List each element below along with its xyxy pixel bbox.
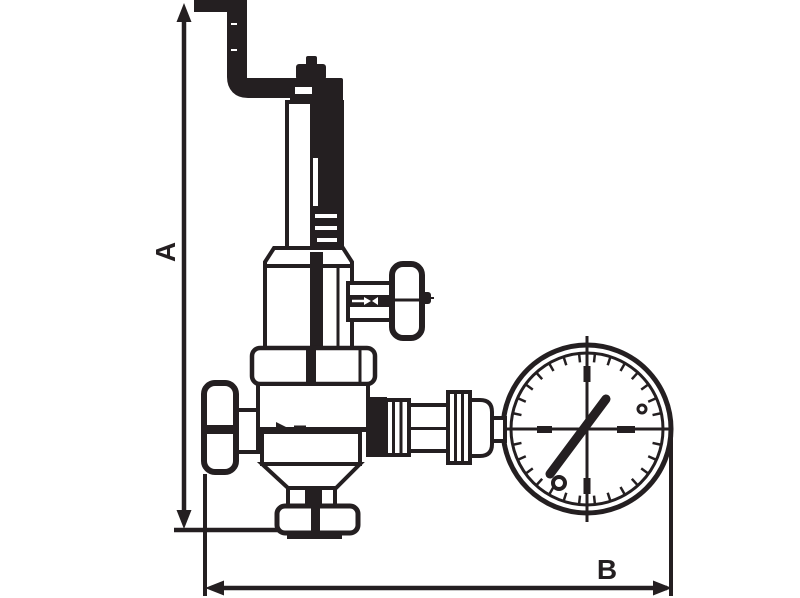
- knob-midband: [204, 425, 236, 434]
- dimension-a-arrow-down-icon: [177, 510, 192, 529]
- spring-housing: [265, 248, 352, 352]
- union-nut-2: [448, 392, 470, 463]
- union-end-cap: [470, 400, 492, 456]
- outlet-flange-divider: [311, 506, 320, 533]
- gauge-stem: [492, 418, 505, 441]
- valve-technical-drawing: A B: [0, 0, 800, 598]
- outlet-neck-band: [305, 488, 322, 506]
- discharge-pipe: [194, 0, 298, 88]
- discharge-pipe-bend: [237, 0, 298, 88]
- spring-housing-shade-band: [310, 252, 323, 352]
- gauge-tick: [653, 413, 661, 415]
- shutoff-knob: [204, 383, 258, 472]
- dimension-b-label: B: [597, 554, 617, 585]
- body-flange-divider: [306, 348, 316, 384]
- pressure-gauge: [503, 336, 671, 522]
- outlet-unions: [366, 392, 505, 463]
- stem-highlight: [313, 158, 318, 206]
- gauge-scale-mark: [537, 426, 552, 433]
- valve-body: [252, 348, 375, 539]
- gauge-tick: [653, 443, 661, 445]
- gauge-tick: [514, 413, 522, 415]
- side-tap: [348, 264, 434, 338]
- body-taper: [262, 464, 360, 488]
- gauge-tick: [514, 443, 522, 445]
- stem-collar-slot: [295, 87, 312, 94]
- stem-thread-line: [317, 238, 337, 242]
- gauge-tick: [594, 496, 595, 504]
- gauge-needle-hub: [553, 477, 565, 489]
- gauge-scale-mark: [584, 366, 591, 382]
- t-handle-nub: [422, 292, 431, 304]
- outlet-bottom-face: [287, 533, 342, 539]
- gauge-tick: [579, 496, 580, 504]
- gauge-scale-mark: [617, 426, 635, 433]
- union-nut-1: [386, 400, 409, 455]
- gauge-tick: [579, 354, 580, 362]
- gauge-dial-screw: [638, 405, 646, 413]
- body-upper: [258, 384, 368, 430]
- stem-dome: [296, 64, 326, 80]
- stem-thread-line: [315, 214, 337, 218]
- dimension-a-arrow-up-icon: [177, 3, 192, 22]
- gauge-scale-mark: [584, 478, 591, 494]
- dimension-a-label: A: [150, 242, 181, 262]
- gauge-tick: [594, 354, 595, 362]
- dimension-b-arrow-left-icon: [205, 581, 224, 596]
- stem-thread-line: [315, 226, 337, 230]
- body-lower: [262, 432, 360, 464]
- adjusting-stem: [287, 56, 343, 252]
